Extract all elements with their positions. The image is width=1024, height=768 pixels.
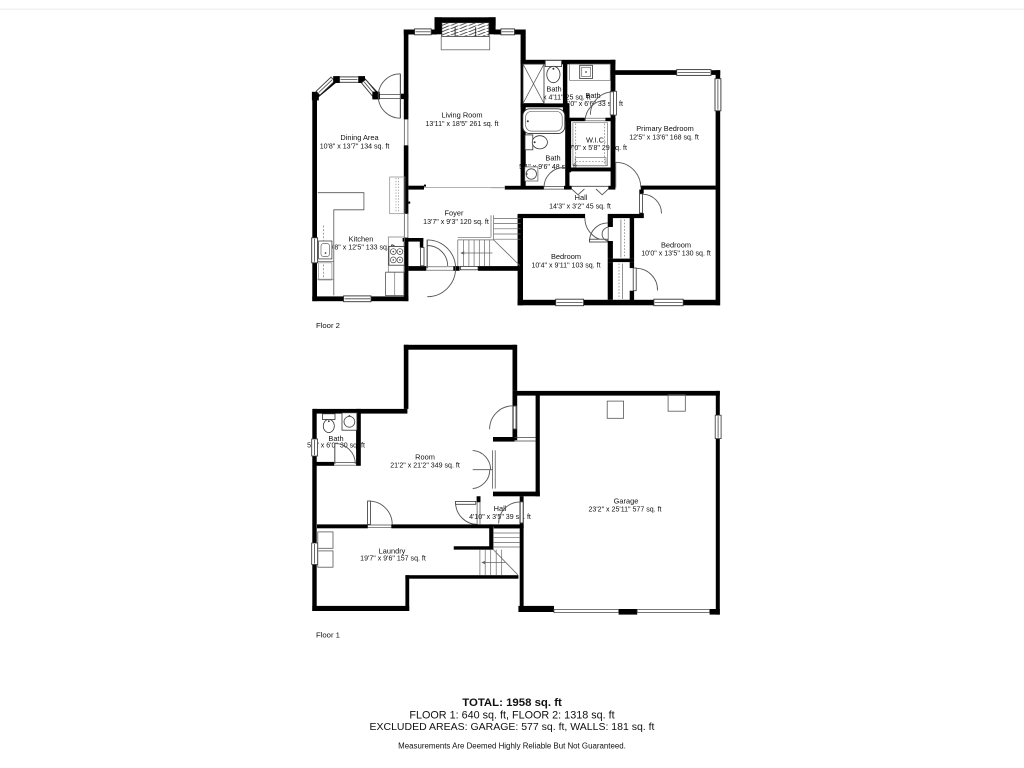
svg-text:Bath: Bath (585, 91, 600, 100)
svg-text:Foyer: Foyer (445, 209, 464, 218)
svg-text:Bedroom: Bedroom (551, 252, 581, 261)
svg-text:10'4" x 9'11" 103 sq. ft: 10'4" x 9'11" 103 sq. ft (531, 263, 600, 270)
svg-text:19'7" x 9'6" 157 sq. ft: 19'7" x 9'6" 157 sq. ft (360, 556, 426, 563)
svg-text:EXCLUDED AREAS: GARAGE: 577 sq: EXCLUDED AREAS: GARAGE: 577 sq. ft, WALL… (370, 721, 655, 733)
svg-text:Dining Area: Dining Area (340, 133, 379, 142)
svg-text:Living Room: Living Room (441, 111, 482, 120)
svg-text:21'2" x 21'2" 349 sq. ft: 21'2" x 21'2" 349 sq. ft (390, 463, 460, 470)
svg-text:Floor 2: Floor 2 (316, 321, 340, 330)
svg-text:Primary Bedroom: Primary Bedroom (636, 124, 694, 133)
svg-text:Laundry: Laundry (379, 547, 406, 556)
svg-text:12'5" x 13'6" 168 sq. ft: 12'5" x 13'6" 168 sq. ft (629, 135, 699, 142)
svg-text:10'8" x 13'7" 134 sq. ft: 10'8" x 13'7" 134 sq. ft (320, 144, 390, 151)
svg-text:13'11" x 18'5" 261 sq. ft: 13'11" x 18'5" 261 sq. ft (426, 121, 499, 128)
svg-text:Hall: Hall (575, 193, 588, 202)
svg-text:23'2" x 25'11" 577 sq. ft: 23'2" x 25'11" 577 sq. ft (589, 507, 662, 514)
svg-text:Room: Room (415, 453, 435, 462)
svg-text:7'0" x 5'8" 29 sq. ft: 7'0" x 5'8" 29 sq. ft (569, 145, 627, 152)
svg-text:Floor 1: Floor 1 (316, 631, 340, 640)
svg-text:FLOOR 1: 640 sq. ft, FLOOR 2:: FLOOR 1: 640 sq. ft, FLOOR 2: 1318 sq. f… (409, 709, 614, 721)
svg-text:10'0" x 13'5" 130 sq. ft: 10'0" x 13'5" 130 sq. ft (641, 251, 711, 258)
svg-text:Measurements Are Deemed Highly: Measurements Are Deemed Highly Reliable … (398, 742, 626, 751)
svg-text:W.I.C.: W.I.C. (586, 136, 606, 145)
svg-text:Bath: Bath (545, 154, 560, 163)
svg-text:Kitchen: Kitchen (349, 235, 374, 244)
svg-text:14'3" x 3'2" 45 sq. ft: 14'3" x 3'2" 45 sq. ft (549, 204, 611, 211)
svg-text:Bath: Bath (546, 85, 561, 94)
svg-text:Garage: Garage (614, 497, 639, 506)
svg-text:Bedroom: Bedroom (661, 241, 691, 250)
svg-text:10'8" x 12'5" 133 sq. ft: 10'8" x 12'5" 133 sq. ft (325, 245, 395, 252)
svg-text:13'7" x 9'3" 120 sq. ft: 13'7" x 9'3" 120 sq. ft (423, 219, 489, 226)
svg-text:TOTAL: 1958 sq. ft: TOTAL: 1958 sq. ft (462, 697, 562, 709)
